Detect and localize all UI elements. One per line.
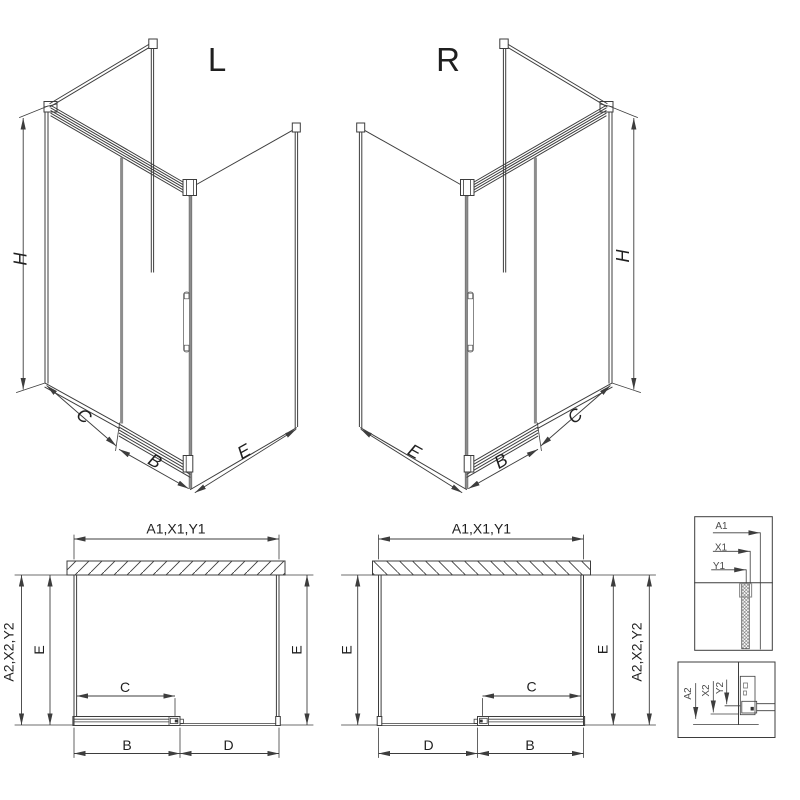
plan-right-track-dim: B [525,737,534,753]
plan-right-depth-right-dim: E [595,645,611,654]
iso-view-right: R H C B E [357,39,641,493]
plan-right-outer-depth-dim: A2,X2,Y2 [629,622,645,681]
detail-top-dim-a1: A1 [715,521,728,532]
detail-bottom-dim-x2: X2 [701,684,712,697]
dim-label-side-left: E [234,439,255,463]
plan-view-left: A1,X1,Y1 A2,X2,Y2 E E C B D [1,521,314,758]
dim-label-height-left: H [11,252,31,266]
plan-left-track-dim: B [122,737,131,753]
detail-box-top: A1 X1 Y1 [695,517,773,651]
view-title-right: R [436,41,460,78]
plan-right-door-dim: C [526,679,536,695]
drawing-page: L H C B E R H C B E A1,X1,Y1 A2,X2,Y2 E … [0,0,800,800]
plan-view-right: A1,X1,Y1 E E A2,X2,Y2 C D B [339,521,656,758]
plan-left-outer-depth-dim: A2,X2,Y2 [1,622,17,681]
plan-left-door-dim: C [120,679,130,695]
dim-label-height-right: H [613,249,633,263]
plan-right-opening-dim: D [423,737,433,753]
plan-left-depth-right-dim: E [289,645,305,654]
detail-box-bottom: A2 X2 Y2 [678,662,775,738]
plan-left-depth-left-dim: E [31,645,47,654]
plan-right-depth-left-dim: E [339,645,355,654]
dim-label-side-right: E [404,440,425,464]
detail-top-dim-y1: Y1 [713,561,726,572]
view-title-left: L [208,41,226,78]
plan-right-width-dim: A1,X1,Y1 [452,521,511,537]
plan-left-opening-dim: D [223,737,233,753]
iso-view-left: L H C B E [11,39,301,493]
detail-top-dim-x1: X1 [715,543,728,554]
dim-label-panel-left: C [73,404,97,428]
detail-bottom-dim-a2: A2 [683,687,694,700]
plan-left-width-dim: A1,X1,Y1 [146,521,205,537]
detail-bottom-dim-y2: Y2 [715,681,726,694]
dim-label-panel-right: C [564,404,588,428]
technical-drawing: L H C B E R H C B E A1,X1,Y1 A2,X2,Y2 E … [0,0,800,800]
